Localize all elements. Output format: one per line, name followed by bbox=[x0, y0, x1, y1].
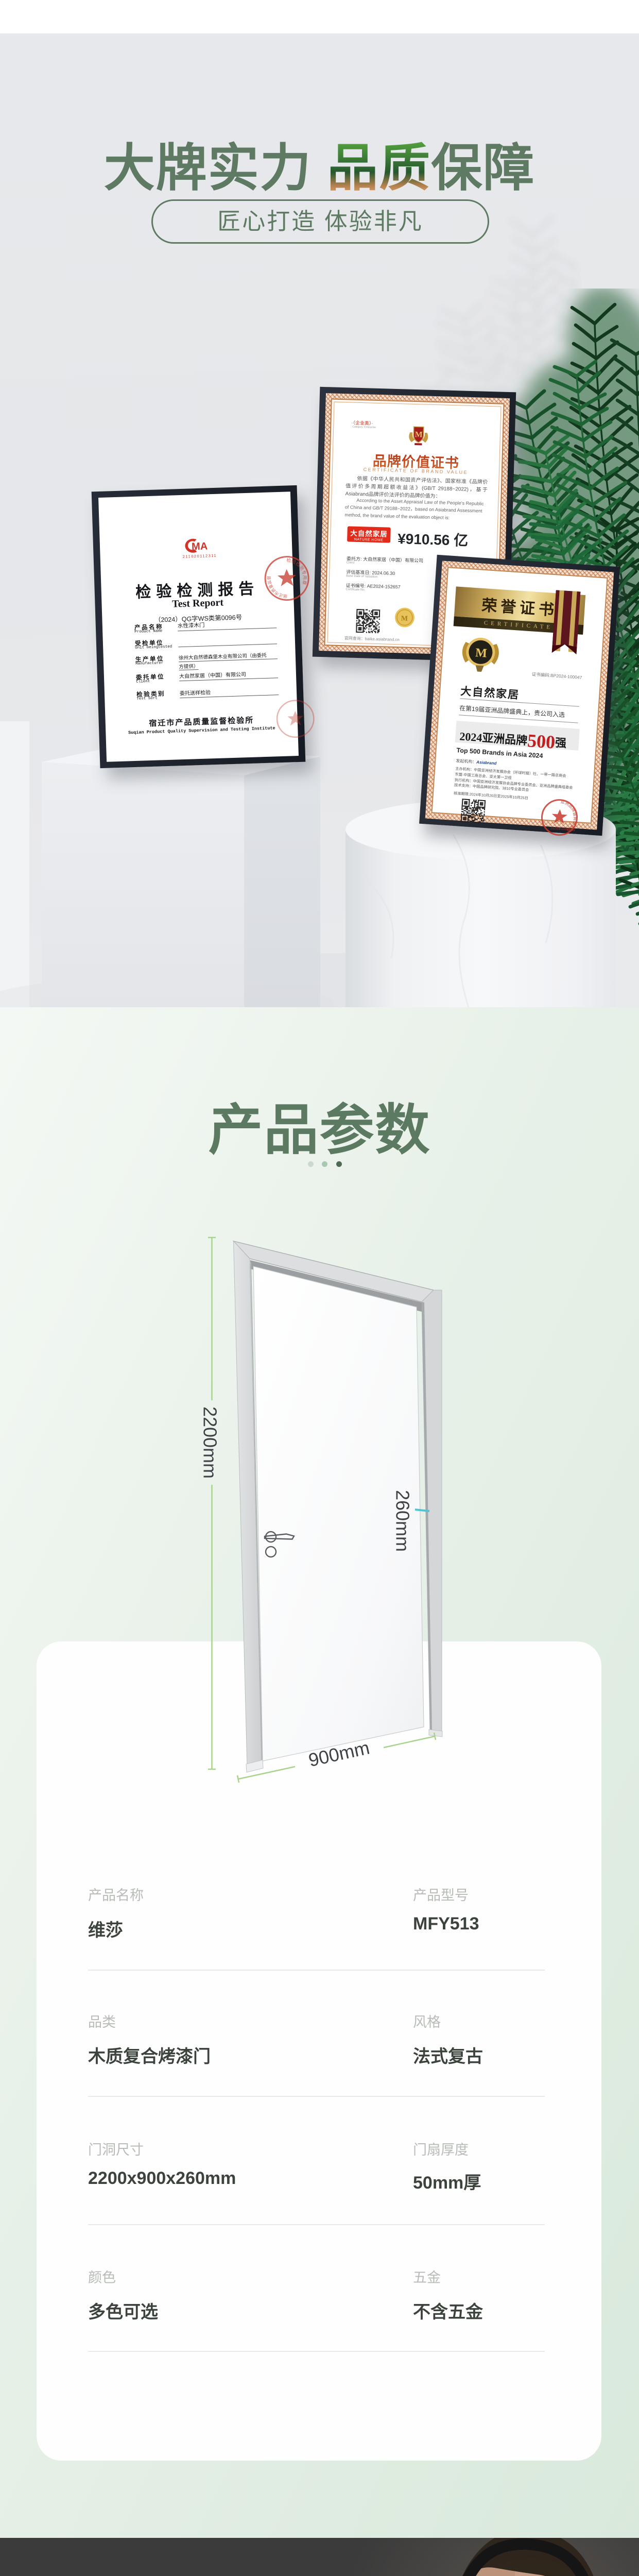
svg-text:211020112311: 211020112311 bbox=[183, 553, 217, 559]
svg-text:M: M bbox=[415, 430, 422, 439]
svg-text:260mm: 260mm bbox=[392, 1490, 413, 1552]
svg-text:MA: MA bbox=[192, 540, 208, 552]
svg-text:M: M bbox=[401, 615, 408, 622]
svg-text:M: M bbox=[475, 646, 487, 660]
svg-text:2200mm: 2200mm bbox=[199, 1406, 220, 1479]
